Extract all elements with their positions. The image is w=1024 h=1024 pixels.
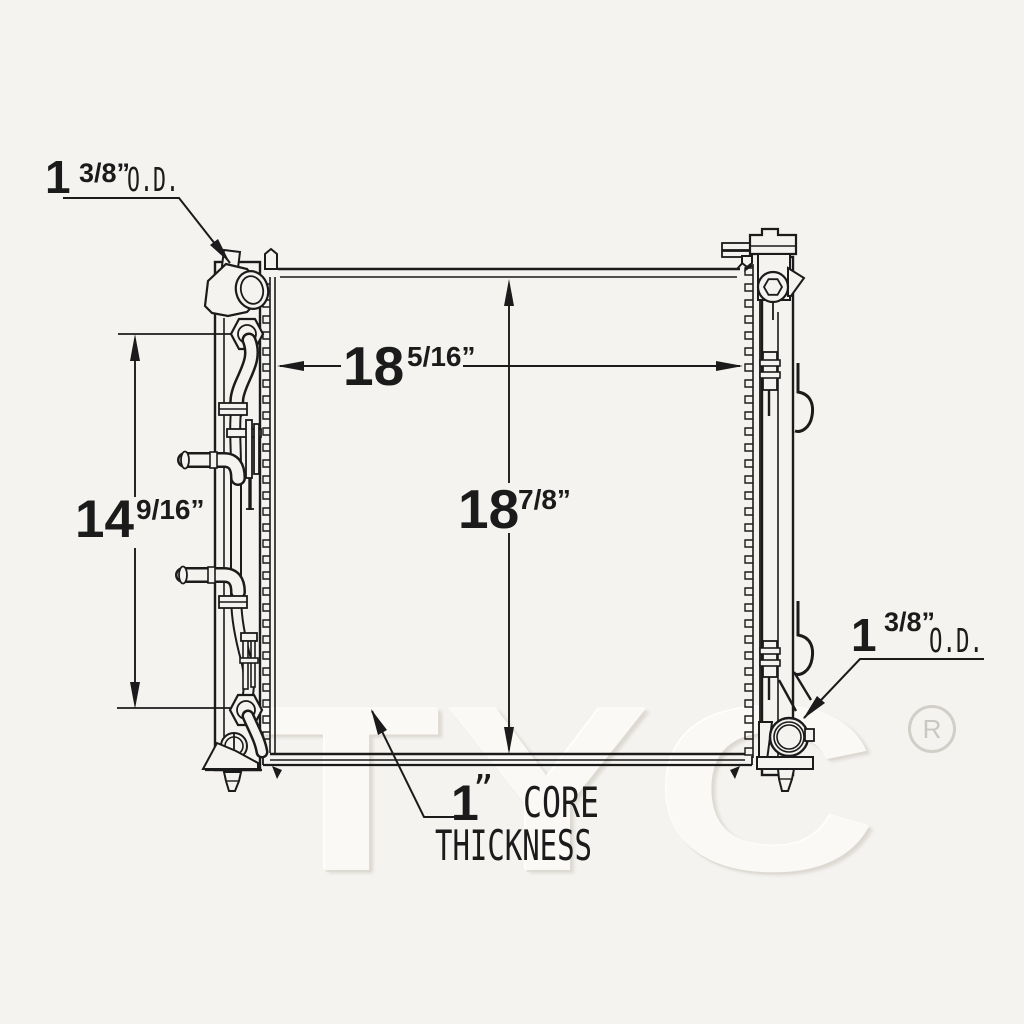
dimension-annotations: 1 3/8” O.D. 18 5/16” 18 7/8” (45, 151, 984, 870)
right-lower-hook (795, 601, 813, 674)
core-width-fraction: 5/16” (407, 341, 476, 372)
right-serrated-edge (745, 258, 760, 762)
radiator-line-drawing: 1 3/8” O.D. 18 5/16” 18 7/8” (0, 0, 1024, 1024)
port-span-dimension: 14 9/16” (75, 334, 205, 709)
port-span-fraction: 9/16” (136, 494, 205, 525)
bracket-wing (788, 268, 804, 296)
left-serrated-edge (263, 277, 275, 754)
mount-boss (758, 272, 788, 302)
inlet-neck (205, 250, 272, 316)
outlet-od-callout: 1 3/8” O.D. (803, 607, 984, 719)
right-drain-plug (778, 769, 794, 791)
core-thickness-callout: 1 ” CORE THICKNESS (371, 709, 599, 870)
core-height-fraction: 7/8” (518, 484, 571, 515)
inlet-od-callout: 1 3/8” O.D. (45, 151, 230, 263)
outlet-port (770, 718, 808, 756)
outlet-od-suffix: O.D. (929, 621, 983, 660)
core-thickness-quote: ” (473, 769, 493, 809)
right-tank (722, 229, 814, 791)
outlet-od-fraction: 3/8” (884, 607, 935, 637)
core-top-tab (265, 249, 277, 269)
port-span-whole: 14 (75, 490, 134, 549)
core-width-whole: 18 (343, 335, 404, 397)
outlet-od-whole: 1 (851, 609, 877, 661)
inlet-od-whole: 1 (45, 151, 71, 203)
radiator-diagram: TYC R (0, 0, 1024, 1024)
right-upper-hook (795, 363, 813, 431)
core-bottom-rail (263, 754, 752, 779)
core-thickness-label-2: THICKNESS (435, 821, 592, 870)
core-width-dimension: 18 5/16” (277, 335, 743, 397)
inlet-od-suffix: O.D. (127, 160, 179, 199)
inlet-od-fraction: 3/8” (79, 158, 130, 188)
core-thickness-label-1: CORE (523, 778, 599, 827)
core-height-whole: 18 (458, 478, 519, 540)
